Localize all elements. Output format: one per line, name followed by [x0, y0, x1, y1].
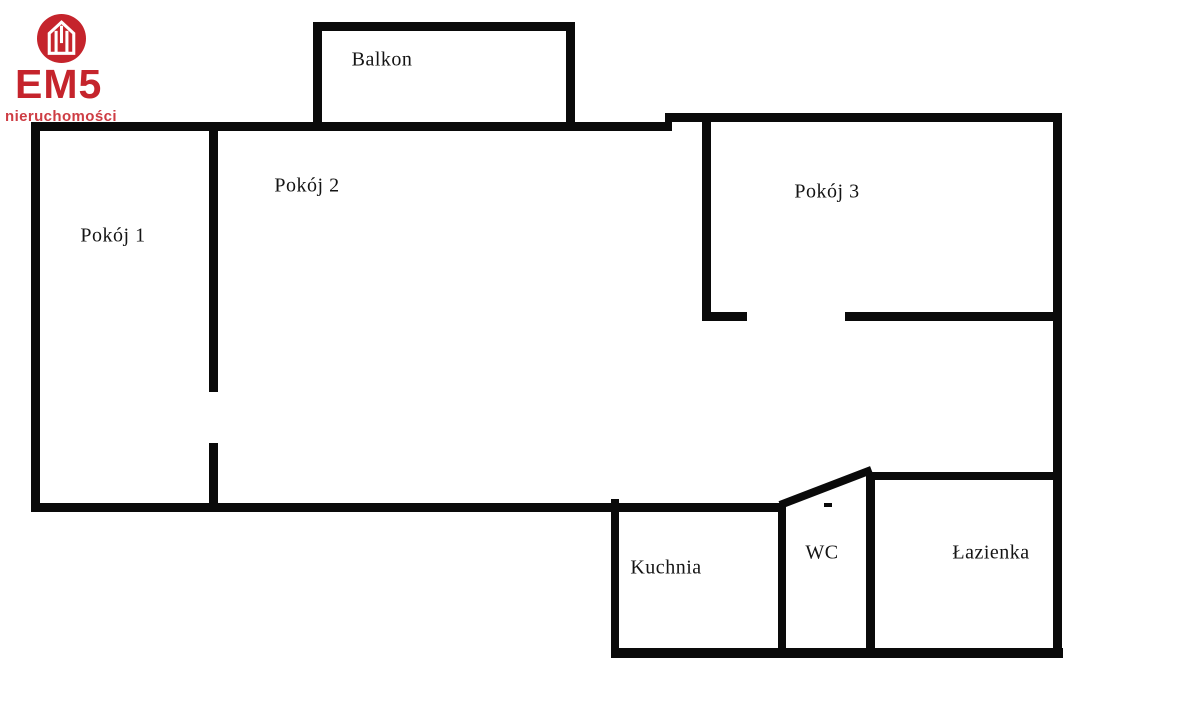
- room-label-kuchnia: Kuchnia: [630, 557, 701, 580]
- room-label-pokoj-3: Pokój 3: [794, 181, 859, 204]
- wall-pokoj3-bottom-left: [702, 312, 747, 321]
- wall-balcony-top: [313, 22, 575, 31]
- wall-room12-divider-upper: [209, 127, 218, 392]
- wall-outer-right: [1053, 113, 1062, 658]
- floorplan-canvas: EM5 nieruchomości Balkon Pokój 1 Pokój 2…: [0, 0, 1200, 701]
- wall-bottom-main: [31, 503, 786, 512]
- wall-balcony-left: [313, 22, 322, 126]
- wall-top-right-section: [665, 113, 1062, 122]
- wall-balcony-right: [566, 22, 575, 122]
- room-label-lazienka: Łazienka: [952, 542, 1029, 565]
- wall-wc-bathroom-divider: [866, 472, 875, 658]
- room-label-balkon: Balkon: [352, 49, 413, 72]
- logo-subtitle-text: nieruchomości: [5, 109, 117, 124]
- room-label-wc: WC: [805, 542, 838, 565]
- room-label-pokoj-1: Pokój 1: [80, 225, 145, 248]
- house-icon: [37, 14, 86, 63]
- wall-bottom-lower: [611, 648, 1063, 658]
- wall-wc-dash-mark: [824, 503, 832, 507]
- wall-kitchen-right: [778, 505, 786, 658]
- logo-brand-text: EM5: [15, 64, 102, 105]
- room-label-pokoj-2: Pokój 2: [274, 175, 339, 198]
- wall-kitchen-left: [611, 499, 619, 658]
- wall-room23-divider: [702, 118, 711, 320]
- wall-pokoj3-bottom-right: [845, 312, 1062, 321]
- em5-logo: EM5 nieruchomości: [0, 0, 180, 135]
- wall-outer-left: [31, 122, 40, 512]
- wall-bathroom-top: [866, 472, 1062, 480]
- wall-room12-divider-lower: [209, 443, 218, 508]
